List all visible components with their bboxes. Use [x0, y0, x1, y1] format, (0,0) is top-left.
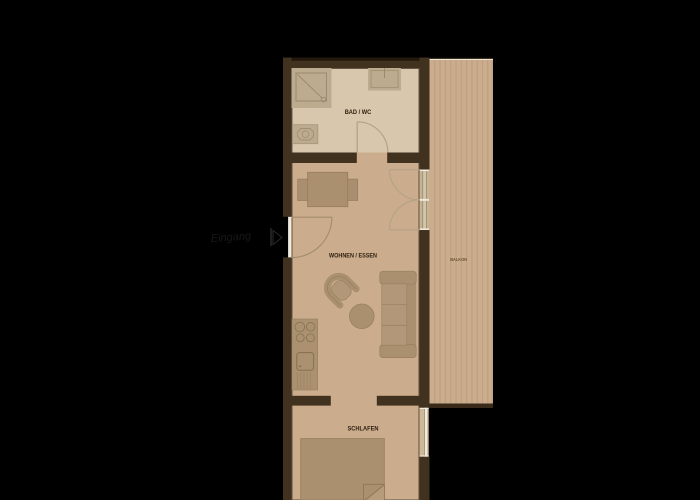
svg-text:SCHLAFEN: SCHLAFEN [348, 426, 379, 433]
svg-text:BALKON: BALKON [450, 257, 467, 263]
svg-text:WOHNEN / ESSEN: WOHNEN / ESSEN [329, 253, 377, 260]
svg-text:BAD / WC: BAD / WC [345, 109, 372, 116]
